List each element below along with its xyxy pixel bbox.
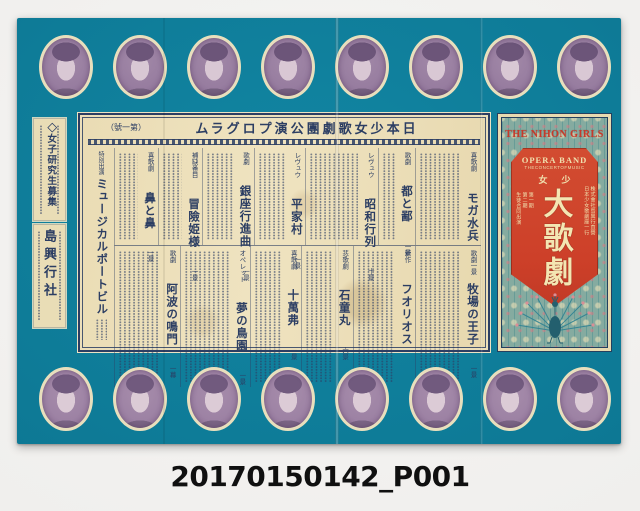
section-title: 悲歌劇 石童丸 六景 <box>335 248 352 386</box>
section-genre: 悲歌劇 <box>341 250 348 270</box>
program-section: 喜歌劇 鼻と鼻 一景 <box>114 148 158 245</box>
program-rows: 喜歌劇 モガ水兵 一景 歌劇 都と鄙 一景 <box>114 148 481 343</box>
section-play-title: 平家村 <box>290 198 302 236</box>
section-genre: 補缺番目 <box>190 152 197 178</box>
section-genre: 歌劇 <box>469 250 476 263</box>
cast-text-texture <box>357 251 396 383</box>
small-text-texture <box>56 125 60 214</box>
agency-notice-box: 島興行社 <box>33 224 66 328</box>
peacock-feather-background: THE NIHON GIRLS OPERA BAND THECONCERTOFM… <box>501 117 608 348</box>
small-text-texture <box>58 231 62 321</box>
performer-portrait <box>409 367 463 431</box>
program-sheet: （號一第） ムラグロプ演公團劇歌女少本日 喜歌劇 モガ水兵 一景 <box>78 113 490 352</box>
section-genre: レヴュウ <box>366 152 373 178</box>
cast-text-texture <box>305 251 333 383</box>
peacock-illustration <box>513 291 597 345</box>
section-genre: オペレット <box>238 250 245 283</box>
theater-program-poster: ◇女子研究生募集 島興行社 （號一第） ムラグロプ演公團劇歌女少本日 喜歌劇 モ… <box>17 18 621 444</box>
section-scene-count: 六景 <box>341 347 348 360</box>
cast-text-texture <box>206 153 234 240</box>
red-title-shield: OPERA BAND THECONCERTOFMUSIC 女少 大歌劇 株式會社… <box>511 148 598 306</box>
performer-portrait <box>335 367 389 431</box>
troupe-line: 日本少女歌劇座一行 <box>583 186 589 236</box>
program-body: 喜歌劇 モガ水兵 一景 歌劇 都と鄙 一景 <box>87 148 481 343</box>
program-header: （號一第） ムラグロプ演公團劇歌女少本日 <box>80 115 488 139</box>
section-title: オペレット 夢の鳥園 一景 <box>232 248 249 386</box>
cast-text-texture <box>382 153 395 240</box>
opera-title-panel: THE NIHON GIRLS OPERA BAND THECONCERTOFM… <box>497 113 612 352</box>
section-play-title: 夢の鳥園 <box>235 302 247 352</box>
section-play-title: フオリオス <box>400 283 412 346</box>
recruit-notice-box: ◇女子研究生募集 <box>33 118 66 221</box>
special-title: ミュージカルポートビル <box>95 178 107 316</box>
section-title: 新作 フオリオス <box>397 248 414 386</box>
section-title: 喜歌劇 十萬弗 一景 <box>283 248 300 386</box>
section-genre: 喜歌劇 <box>146 152 153 172</box>
section-play-title: 銀座行進曲 <box>239 185 251 248</box>
concert-subtitle: THECONCERTOFMUSIC <box>511 165 598 170</box>
section-play-title: 昭和行列 <box>363 198 375 248</box>
section-title: 喜歌劇 モガ水兵 一景 <box>463 150 480 243</box>
performer-portrait <box>39 35 93 99</box>
section-play-title: 石童丸 <box>338 289 350 327</box>
section-genre: レヴュウ <box>293 152 300 178</box>
portrait-row-bottom <box>39 366 611 432</box>
program-title-text: ムラグロプ演公團劇歌女少本日 <box>195 118 418 137</box>
section-play-title: 冒險姫様 <box>187 198 199 248</box>
students-line: 生徒合同出演 <box>515 192 521 225</box>
cast-text-texture <box>258 153 286 240</box>
cast-text-texture <box>118 153 138 240</box>
performer-portrait <box>39 367 93 431</box>
cast-text-texture <box>419 153 461 240</box>
performer-portrait <box>261 35 315 99</box>
section-title: 喜歌劇 鼻と鼻 一景 <box>140 150 157 243</box>
performer-portrait <box>557 35 611 99</box>
program-issue-number: （號一第） <box>106 122 146 133</box>
cast-text-texture <box>309 153 359 240</box>
program-section: レヴュウ 昭和行列 十景 <box>305 148 378 245</box>
cast-text-texture <box>184 251 230 383</box>
program-section: 歌劇 都と鄙 一景 <box>378 148 415 245</box>
cast-text-texture <box>118 251 160 383</box>
program-section: 歌劇 銀座行進曲 一景 <box>202 148 253 245</box>
performer-portrait <box>187 35 241 99</box>
term-line-1: 第一期 <box>527 192 533 225</box>
grand-opera-title: 大歌劇 <box>540 188 570 290</box>
performer-portrait <box>409 35 463 99</box>
section-title: 補缺番目 冒險姫様 一景 <box>184 150 201 243</box>
producer-line: 株式會社島興行直營 <box>589 186 595 236</box>
cast-text-texture <box>95 319 107 341</box>
program-section: レヴュウ 平家村 一景 <box>254 148 305 245</box>
performer-portrait <box>113 367 167 431</box>
section-play-title: 牧場の王子 <box>466 283 478 346</box>
special-appearance-column: 特別出演 ミュージカルポートビル <box>87 148 114 343</box>
section-title: 歌劇 牧場の王子 一景 <box>463 248 480 386</box>
section-genre: 歌劇 <box>168 250 175 263</box>
section-genre: 新作 <box>403 250 410 263</box>
section-title: 歌劇 阿波の鳴門 一幕 <box>162 248 179 386</box>
section-play-title: 鼻と鼻 <box>143 192 155 230</box>
special-label: 特別出演 <box>96 151 105 175</box>
catalog-id-caption: 20170150142_P001 <box>0 460 640 493</box>
term-credit: 第一期 第二期 生徒合同出演 <box>514 192 533 225</box>
cast-text-texture <box>254 251 282 383</box>
section-genre: 歌劇 <box>403 152 410 165</box>
section-play-title: 十萬弗 <box>286 289 298 327</box>
recruit-notice-title: ◇女子研究生募集 <box>45 123 55 216</box>
nihon-girls-title: THE NIHON GIRLS <box>502 129 607 140</box>
section-play-title: 都と鄙 <box>400 185 412 223</box>
section-play-title: モガ水兵 <box>466 192 478 242</box>
section-title: レヴュウ 昭和行列 十景 <box>360 150 377 243</box>
section-genre: 喜歌劇 <box>469 152 476 172</box>
performer-portrait <box>483 367 537 431</box>
performer-portrait <box>113 35 167 99</box>
section-play-title: 阿波の鳴門 <box>165 283 177 346</box>
performer-portrait <box>187 367 241 431</box>
agency-notice-title: 島興行社 <box>43 229 56 323</box>
shoujo-label: 女少 <box>511 173 598 186</box>
cast-text-texture <box>419 251 461 383</box>
section-title: レヴュウ 平家村 一景 <box>287 150 304 243</box>
performer-portrait <box>557 367 611 431</box>
performer-portrait <box>483 35 537 99</box>
section-genre: 喜歌劇 <box>289 250 296 270</box>
section-genre: 歌劇 <box>242 152 249 165</box>
program-row-1: 喜歌劇 モガ水兵 一景 歌劇 都と鄙 一景 <box>114 148 481 246</box>
small-text-texture <box>39 125 43 214</box>
section-title: 歌劇 都と鄙 一景 <box>397 150 414 243</box>
portrait-row-top <box>39 34 611 100</box>
chain-border-ornament <box>88 139 480 145</box>
section-scene-count: 一景 <box>289 347 296 360</box>
section-title: 歌劇 銀座行進曲 一景 <box>236 150 253 243</box>
producer-credit: 株式會社島興行直營 日本少女歌劇座一行 <box>582 186 595 236</box>
performer-portrait <box>261 367 315 431</box>
term-line-2: 第二期 <box>521 192 527 225</box>
opera-band-label: OPERA BAND <box>511 155 598 165</box>
program-section: 喜歌劇 モガ水兵 一景 <box>415 148 481 245</box>
performer-portrait <box>335 35 389 99</box>
cast-text-texture <box>162 153 182 240</box>
program-section: 補缺番目 冒險姫様 一景 <box>158 148 202 245</box>
small-text-texture <box>37 231 41 321</box>
